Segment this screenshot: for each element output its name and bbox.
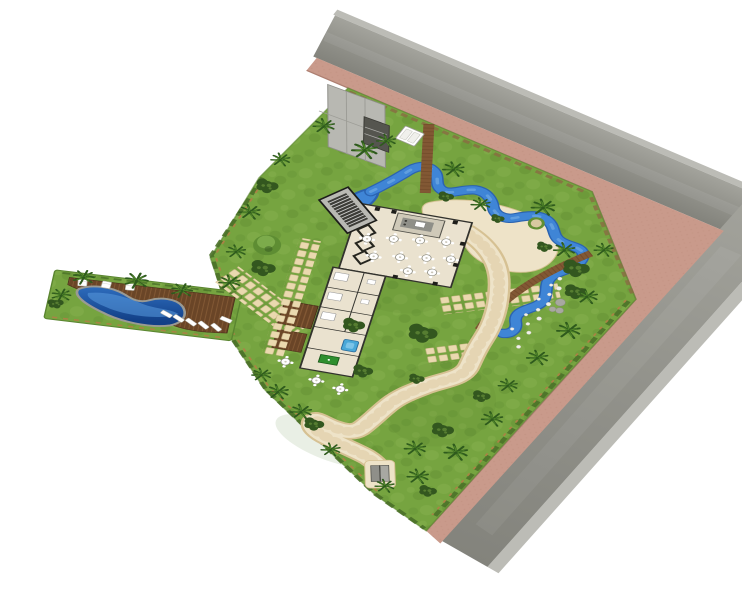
jacuzzi: [341, 339, 359, 352]
daybed: [101, 281, 112, 289]
site-plan-rendering: [0, 0, 742, 600]
site-plan-stage: [0, 0, 742, 600]
rotated-plan: [0, 0, 742, 600]
pool-wing: [44, 263, 244, 340]
